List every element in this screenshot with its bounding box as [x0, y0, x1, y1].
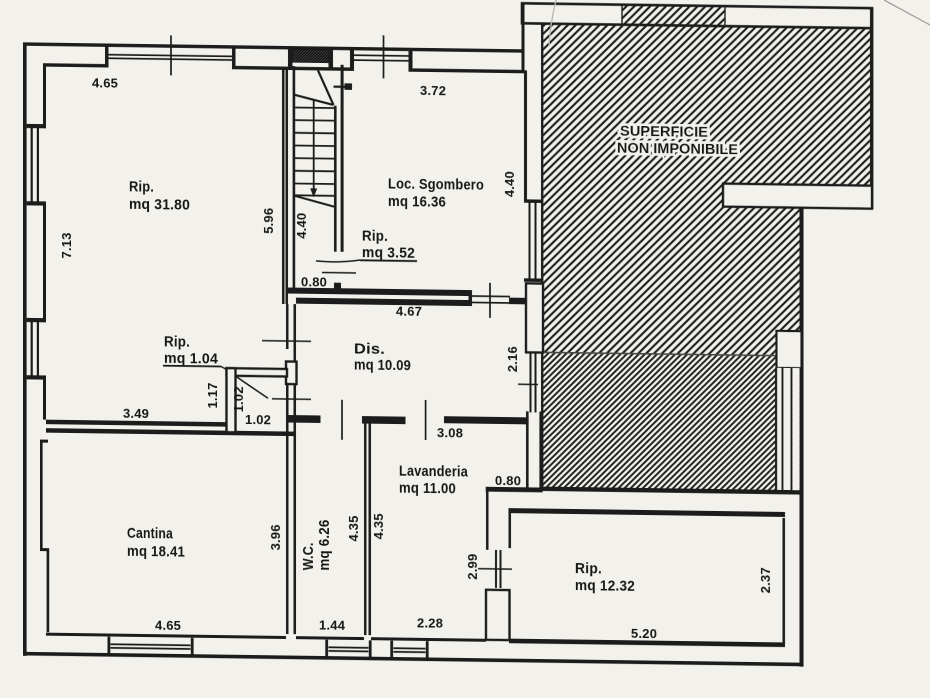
svg-text:2.37: 2.37	[758, 567, 773, 593]
svg-text:mq 11.00: mq 11.00	[399, 480, 456, 498]
svg-text:3.96: 3.96	[268, 524, 283, 550]
svg-text:Rip.: Rip.	[575, 560, 602, 577]
svg-text:Loc. Sgombero: Loc. Sgombero	[388, 175, 484, 193]
svg-text:4.35: 4.35	[346, 515, 361, 541]
svg-text:2.99: 2.99	[465, 553, 480, 579]
svg-text:4.40: 4.40	[502, 171, 517, 197]
svg-text:4.35: 4.35	[371, 513, 386, 539]
svg-text:mq 6.26: mq 6.26	[316, 519, 333, 570]
svg-text:5.96: 5.96	[261, 208, 276, 234]
svg-text:3.08: 3.08	[437, 425, 463, 440]
svg-text:mq 3.52: mq 3.52	[362, 244, 415, 262]
svg-text:Rip.: Rip.	[129, 178, 154, 195]
svg-text:Lavanderia: Lavanderia	[399, 463, 468, 481]
svg-text:SUPERFICIE: SUPERFICIE	[620, 124, 708, 141]
svg-text:W.C.: W.C.	[300, 542, 317, 570]
svg-text:4.40: 4.40	[294, 213, 309, 239]
svg-text:3.72: 3.72	[420, 83, 446, 98]
svg-text:5.20: 5.20	[631, 626, 657, 641]
svg-text:1.44: 1.44	[319, 617, 346, 632]
svg-text:Rip.: Rip.	[164, 333, 190, 350]
svg-text:7.13: 7.13	[59, 232, 74, 258]
svg-text:mq 31.80: mq 31.80	[129, 196, 190, 214]
svg-text:Cantina: Cantina	[127, 525, 173, 543]
svg-text:2.28: 2.28	[417, 615, 443, 630]
svg-text:1.17: 1.17	[205, 382, 220, 408]
svg-text:Dis.: Dis.	[354, 340, 385, 357]
svg-text:4.65: 4.65	[155, 618, 181, 633]
svg-text:Rip.: Rip.	[362, 228, 388, 245]
svg-text:2.16: 2.16	[505, 346, 520, 372]
svg-text:mq 18.41: mq 18.41	[127, 543, 185, 561]
svg-text:mq 10.09: mq 10.09	[354, 356, 411, 374]
svg-text:0.80: 0.80	[495, 473, 521, 488]
svg-text:mq 16.36: mq 16.36	[388, 193, 446, 211]
svg-text:mq 12.32: mq 12.32	[575, 577, 635, 595]
svg-text:4.67: 4.67	[396, 304, 422, 319]
svg-text:4.65: 4.65	[92, 75, 118, 90]
svg-text:3.49: 3.49	[123, 406, 149, 421]
svg-text:NON IMPONIBILE: NON IMPONIBILE	[617, 141, 738, 159]
svg-text:0.80: 0.80	[301, 274, 327, 289]
svg-text:1.02: 1.02	[231, 386, 246, 412]
svg-text:mq 1.04: mq 1.04	[164, 350, 218, 368]
svg-text:1.02: 1.02	[245, 412, 271, 427]
